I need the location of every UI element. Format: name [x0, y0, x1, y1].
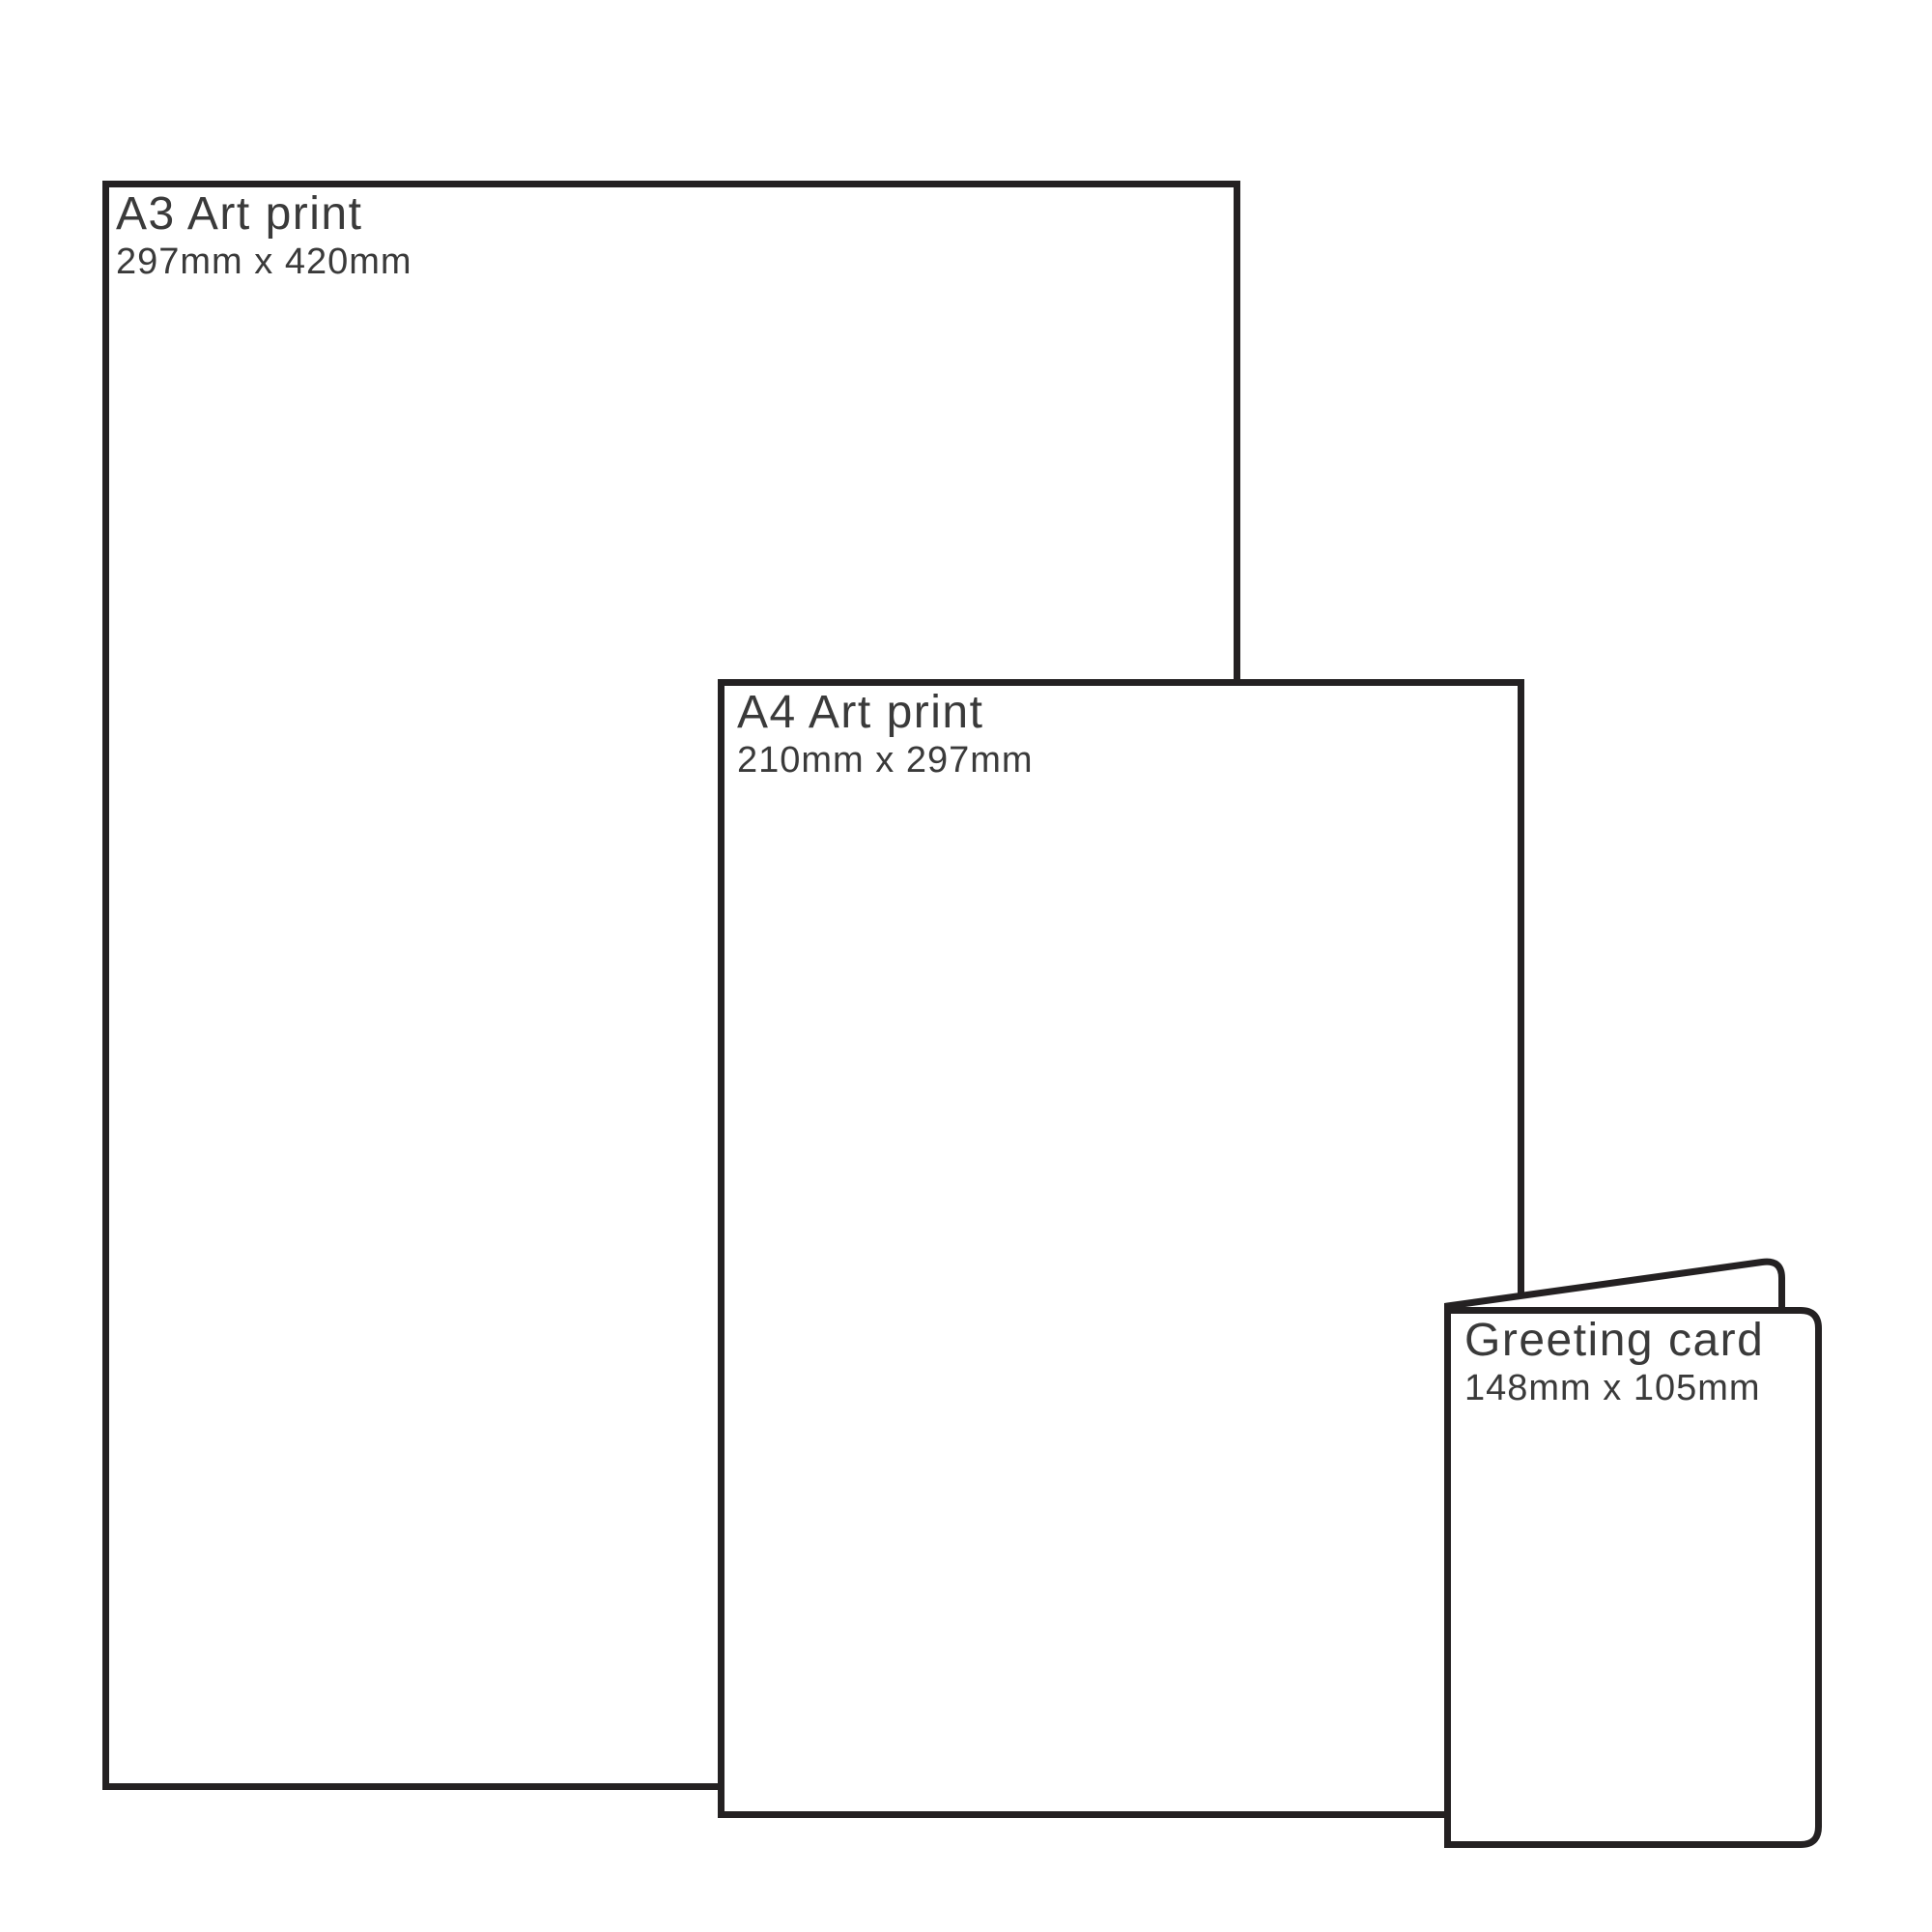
a3-title: A3 Art print [116, 189, 412, 240]
greeting-card-label: Greeting card 148mm x 105mm [1464, 1316, 1764, 1410]
greeting-card-title: Greeting card [1464, 1316, 1764, 1366]
size-comparison-diagram: A3 Art print 297mm x 420mm A4 Art print … [0, 0, 1932, 1932]
greeting-card-dimensions: 148mm x 105mm [1464, 1366, 1764, 1410]
a4-title: A4 Art print [737, 688, 1034, 738]
greeting-card-outline [0, 0, 1932, 1932]
a4-label: A4 Art print 210mm x 297mm [737, 688, 1034, 782]
a3-dimensions: 297mm x 420mm [116, 240, 412, 284]
a4-dimensions: 210mm x 297mm [737, 738, 1034, 782]
a3-label: A3 Art print 297mm x 420mm [116, 189, 412, 284]
